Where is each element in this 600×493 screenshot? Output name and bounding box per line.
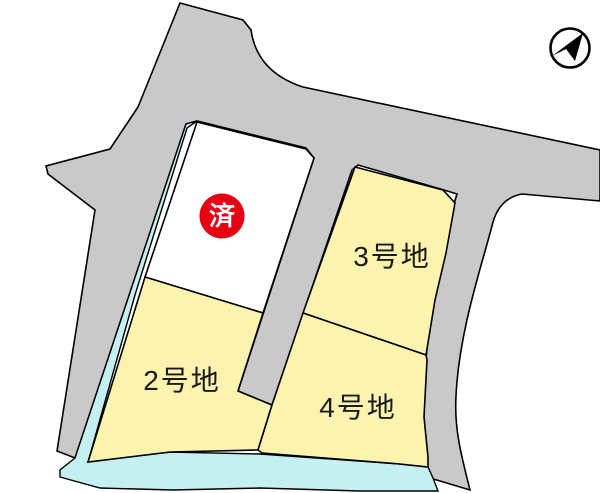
sold-badge: 済 (200, 194, 245, 239)
lot-map-canvas: 済 2号地 3号地 4号地 (0, 0, 600, 493)
lot-4-label: 4号地 (319, 392, 397, 423)
lot-3-label: 3号地 (353, 241, 431, 272)
lot-map: 済 2号地 3号地 4号地 (0, 0, 600, 493)
sold-badge-label: 済 (209, 201, 236, 231)
north-arrow-icon (551, 29, 590, 68)
lot-2-label: 2号地 (143, 365, 221, 396)
